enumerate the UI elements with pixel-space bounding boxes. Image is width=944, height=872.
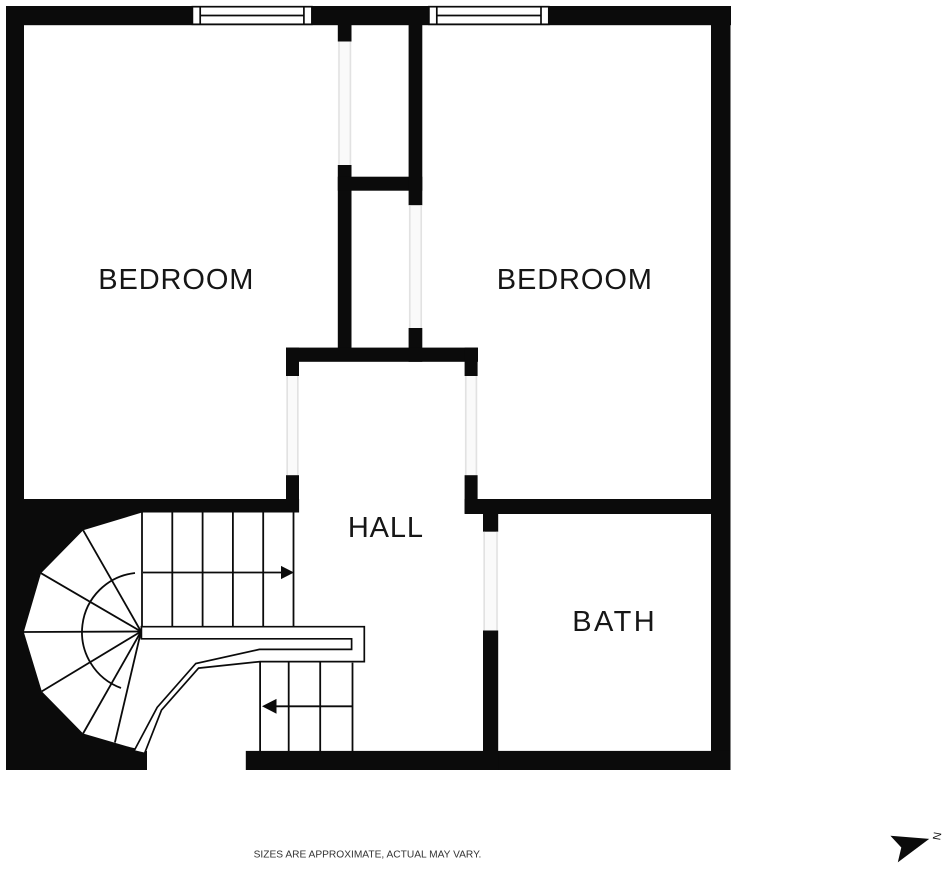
svg-text:BEDROOM: BEDROOM [497,264,653,296]
svg-text:SIZES ARE APPROXIMATE, ACTUAL: SIZES ARE APPROXIMATE, ACTUAL MAY VARY. [254,850,482,861]
svg-text:BEDROOM: BEDROOM [98,264,254,296]
svg-text:BATH: BATH [572,606,657,638]
svg-text:HALL: HALL [348,512,424,544]
